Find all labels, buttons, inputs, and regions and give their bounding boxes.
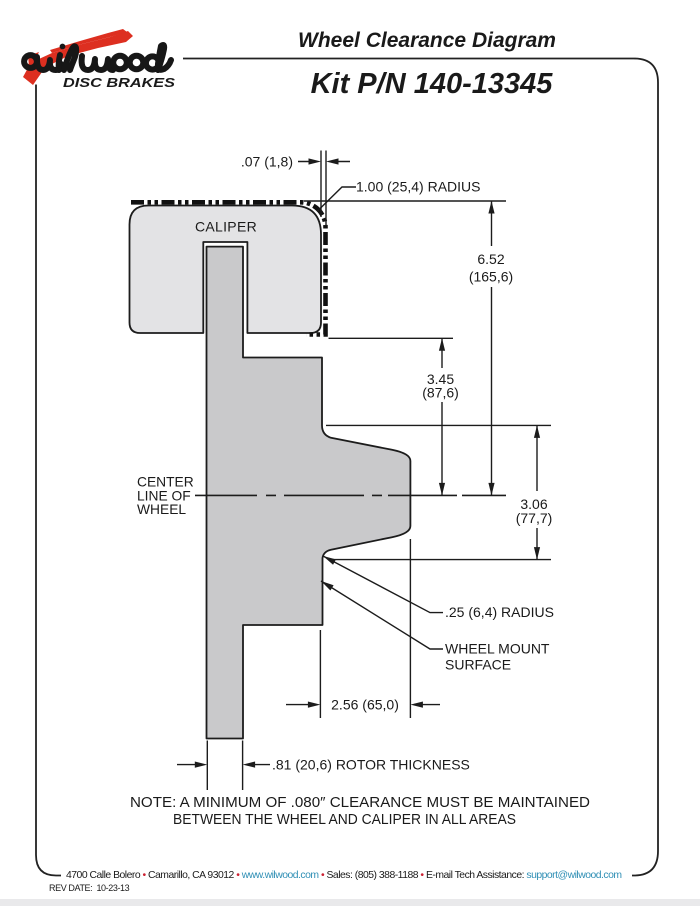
svg-text:DISC BRAKES: DISC BRAKES [63,76,176,90]
svg-text:2.56 (65,0): 2.56 (65,0) [331,696,399,712]
svg-text:6.52: 6.52 [477,251,504,267]
svg-text:SURFACE: SURFACE [445,657,511,673]
svg-text:WHEEL MOUNT: WHEEL MOUNT [445,641,550,657]
svg-text:NOTE: A MINIMUM OF .080″ CLEAR: NOTE: A MINIMUM OF .080″ CLEARANCE MUST … [130,795,590,811]
svg-text:BETWEEN THE WHEEL AND CALIPER: BETWEEN THE WHEEL AND CALIPER IN ALL ARE… [173,812,516,828]
svg-text:CALIPER: CALIPER [195,219,257,235]
svg-text:REV DATE: 10-23-13: REV DATE: 10-23-13 [49,883,130,893]
svg-text:4700 Calle Bolero • Camarillo,: 4700 Calle Bolero • Camarillo, CA 93012 … [66,870,622,881]
svg-text:1.00 (25,4) RADIUS: 1.00 (25,4) RADIUS [356,179,481,195]
svg-text:(165,6): (165,6) [469,269,513,285]
svg-text:CENTER: CENTER [137,475,194,490]
svg-text:(87,6): (87,6) [422,385,459,401]
svg-text:.81 (20,6) ROTOR THICKNESS: .81 (20,6) ROTOR THICKNESS [272,756,470,772]
svg-text:.25 (6,4) RADIUS: .25 (6,4) RADIUS [445,604,554,620]
svg-text:(77,7): (77,7) [516,510,553,526]
svg-text:Wheel Clearance Diagram: Wheel Clearance Diagram [298,29,556,52]
svg-text:WHEEL: WHEEL [137,502,186,517]
svg-text:.07 (1,8): .07 (1,8) [241,154,293,170]
svg-text:Kit P/N 140-13345: Kit P/N 140-13345 [311,68,554,100]
